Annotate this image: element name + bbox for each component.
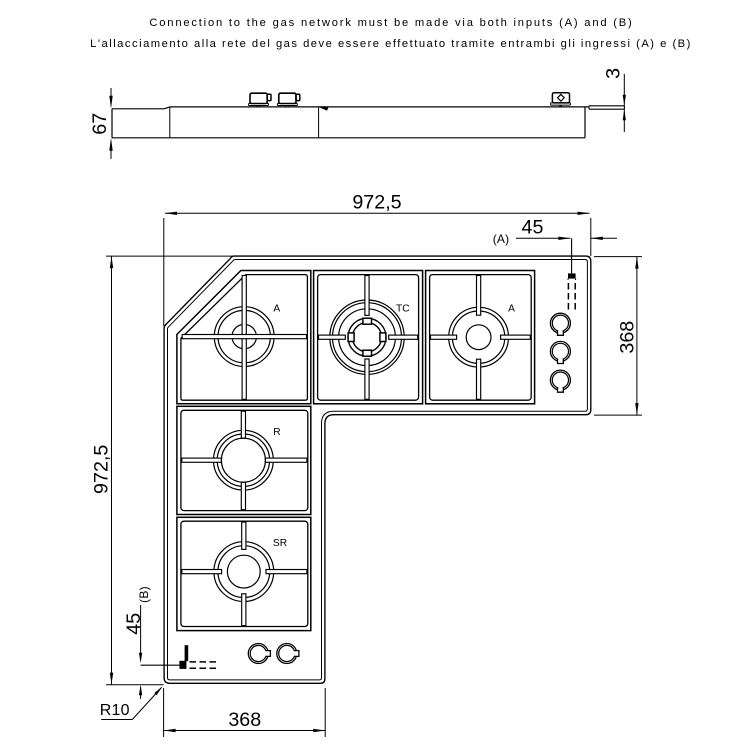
svg-text:(B): (B) bbox=[137, 586, 151, 603]
svg-text:SR: SR bbox=[273, 538, 287, 549]
svg-text:R10: R10 bbox=[100, 702, 130, 719]
svg-text:(A): (A) bbox=[493, 232, 510, 246]
svg-text:L'allacciamento alla rete del: L'allacciamento alla rete del gas deve e… bbox=[90, 38, 692, 50]
svg-text:Connection to the gas network: Connection to the gas network must be ma… bbox=[149, 17, 633, 29]
svg-text:3: 3 bbox=[603, 68, 625, 79]
svg-text:972,5: 972,5 bbox=[352, 192, 401, 214]
svg-text:368: 368 bbox=[617, 321, 639, 354]
svg-text:A: A bbox=[273, 303, 280, 314]
svg-text:TC: TC bbox=[396, 303, 410, 314]
svg-text:R: R bbox=[273, 427, 280, 438]
svg-text:972,5: 972,5 bbox=[90, 445, 112, 494]
svg-text:368: 368 bbox=[228, 709, 261, 731]
svg-text:45: 45 bbox=[522, 217, 544, 239]
svg-text:67: 67 bbox=[89, 113, 111, 135]
svg-text:45: 45 bbox=[123, 613, 145, 635]
svg-text:A: A bbox=[508, 304, 515, 315]
